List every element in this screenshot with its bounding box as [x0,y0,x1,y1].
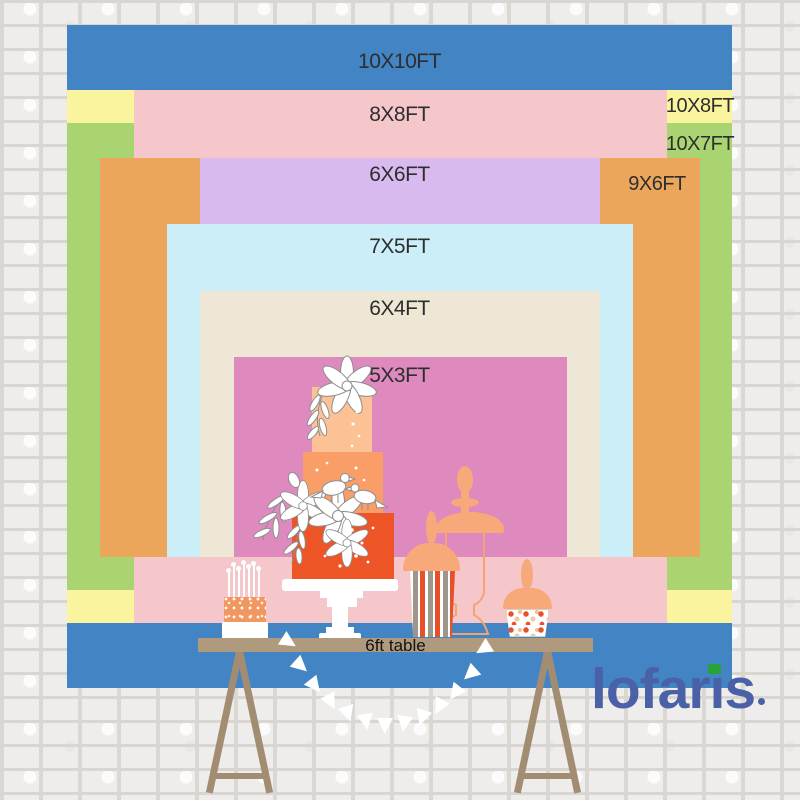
popcorn-jar-knob [426,511,437,544]
candle-tip [226,568,231,573]
brand-logo-text-right: s [724,657,755,721]
candy-jar-finial [521,559,533,590]
size-label-10x8ft: 10X8FT [662,96,738,116]
size-label-10x10ft: 10X10FT [67,51,732,72]
candle-tip [246,564,251,569]
brand-logo-text-left: lofar [591,657,710,721]
size-label-8x8ft: 8X8FT [67,104,732,125]
bunting-flag [395,715,413,733]
cake-floral-birds-decoration [250,350,410,570]
size-label-6x4ft: 6X4FT [67,298,732,319]
size-label-9x6ft: 9X6FT [617,174,697,194]
table-leg-rung [521,773,573,779]
candle-tip [241,560,246,565]
candle [253,565,255,597]
brand-logo: lofarıs [591,661,765,721]
candy-jar-cup [506,609,549,637]
table-leg-rung [213,773,265,779]
size-label-7x5ft: 7X5FT [67,236,732,257]
brand-logo-letter-i: ı [710,657,725,721]
logo-green-accent [708,664,721,674]
candle-tip [236,566,241,571]
candle [258,570,260,597]
leaf-sprig-icon [305,394,331,441]
cake-stand-stem [332,606,348,628]
size-label-10x7ft: 10X7FT [662,134,738,154]
cake-stand-step [320,590,363,598]
logo-dot [758,698,765,705]
bunting-flag [377,718,393,734]
backdrop-size-chart-image: 10X10FT 8X8FT 6X6FT 7X5FT 6X4FT 5X3FT 10… [0,0,800,800]
bunting-flag [338,704,358,724]
popcorn-striped-box [410,571,455,637]
candle-tip [256,566,261,571]
candle [228,572,230,597]
small-cake-dotted-layer [224,597,266,622]
candle-tip [231,562,236,567]
candle-tip [251,561,256,566]
bunting-flag [357,713,375,731]
candle [233,566,235,597]
candle [238,570,240,597]
candle [248,568,250,597]
table-size-label: 6ft table [198,637,593,654]
candle [243,564,245,597]
